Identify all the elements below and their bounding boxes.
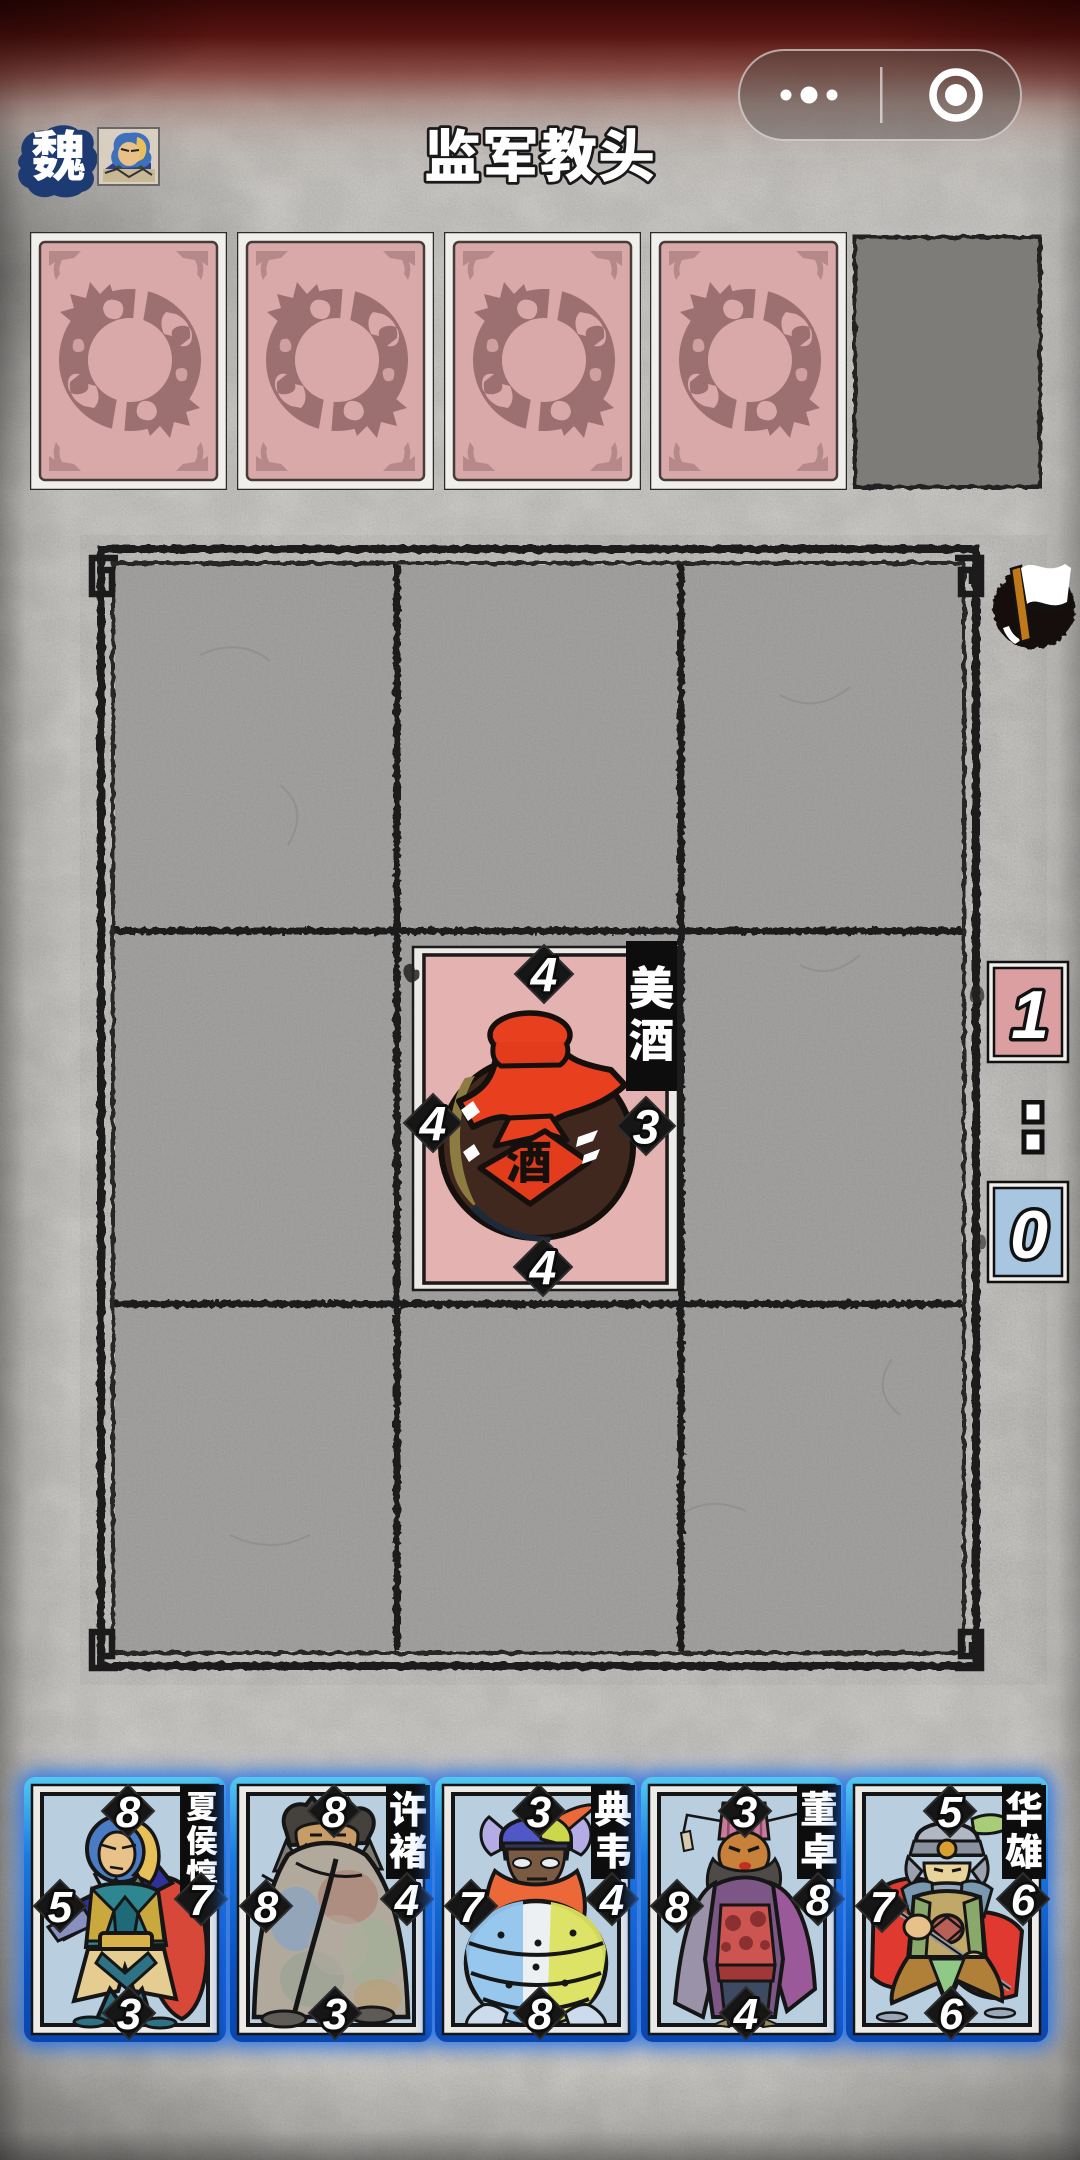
svg-text:3: 3 <box>732 1788 756 1837</box>
svg-text:8: 8 <box>321 1788 346 1837</box>
svg-text:7: 7 <box>459 1883 486 1932</box>
svg-text:3: 3 <box>527 1788 551 1837</box>
svg-text:4: 4 <box>732 1990 757 2039</box>
svg-text:8: 8 <box>805 1876 830 1925</box>
svg-text:3: 3 <box>633 1101 660 1154</box>
svg-text:6: 6 <box>1011 1876 1036 1925</box>
svg-text:5: 5 <box>48 1883 73 1932</box>
svg-text:8: 8 <box>664 1883 689 1932</box>
svg-text:4: 4 <box>599 1876 624 1925</box>
svg-text:4: 4 <box>419 1098 447 1151</box>
svg-text:6: 6 <box>939 1990 964 2039</box>
svg-text:8: 8 <box>253 1883 278 1932</box>
svg-text:8: 8 <box>528 1990 553 2039</box>
svg-text:8: 8 <box>116 1788 141 1837</box>
svg-text:4: 4 <box>530 949 558 1002</box>
svg-text:7: 7 <box>870 1883 897 1932</box>
svg-text:5: 5 <box>938 1788 963 1837</box>
svg-text:3: 3 <box>322 1990 346 2039</box>
svg-text:7: 7 <box>189 1876 216 1925</box>
svg-text:1: 1 <box>1011 977 1049 1053</box>
svg-text:4: 4 <box>393 1876 418 1925</box>
svg-text:3: 3 <box>117 1990 141 2039</box>
svg-text:0: 0 <box>1010 1197 1048 1273</box>
svg-text:4: 4 <box>529 1242 557 1295</box>
